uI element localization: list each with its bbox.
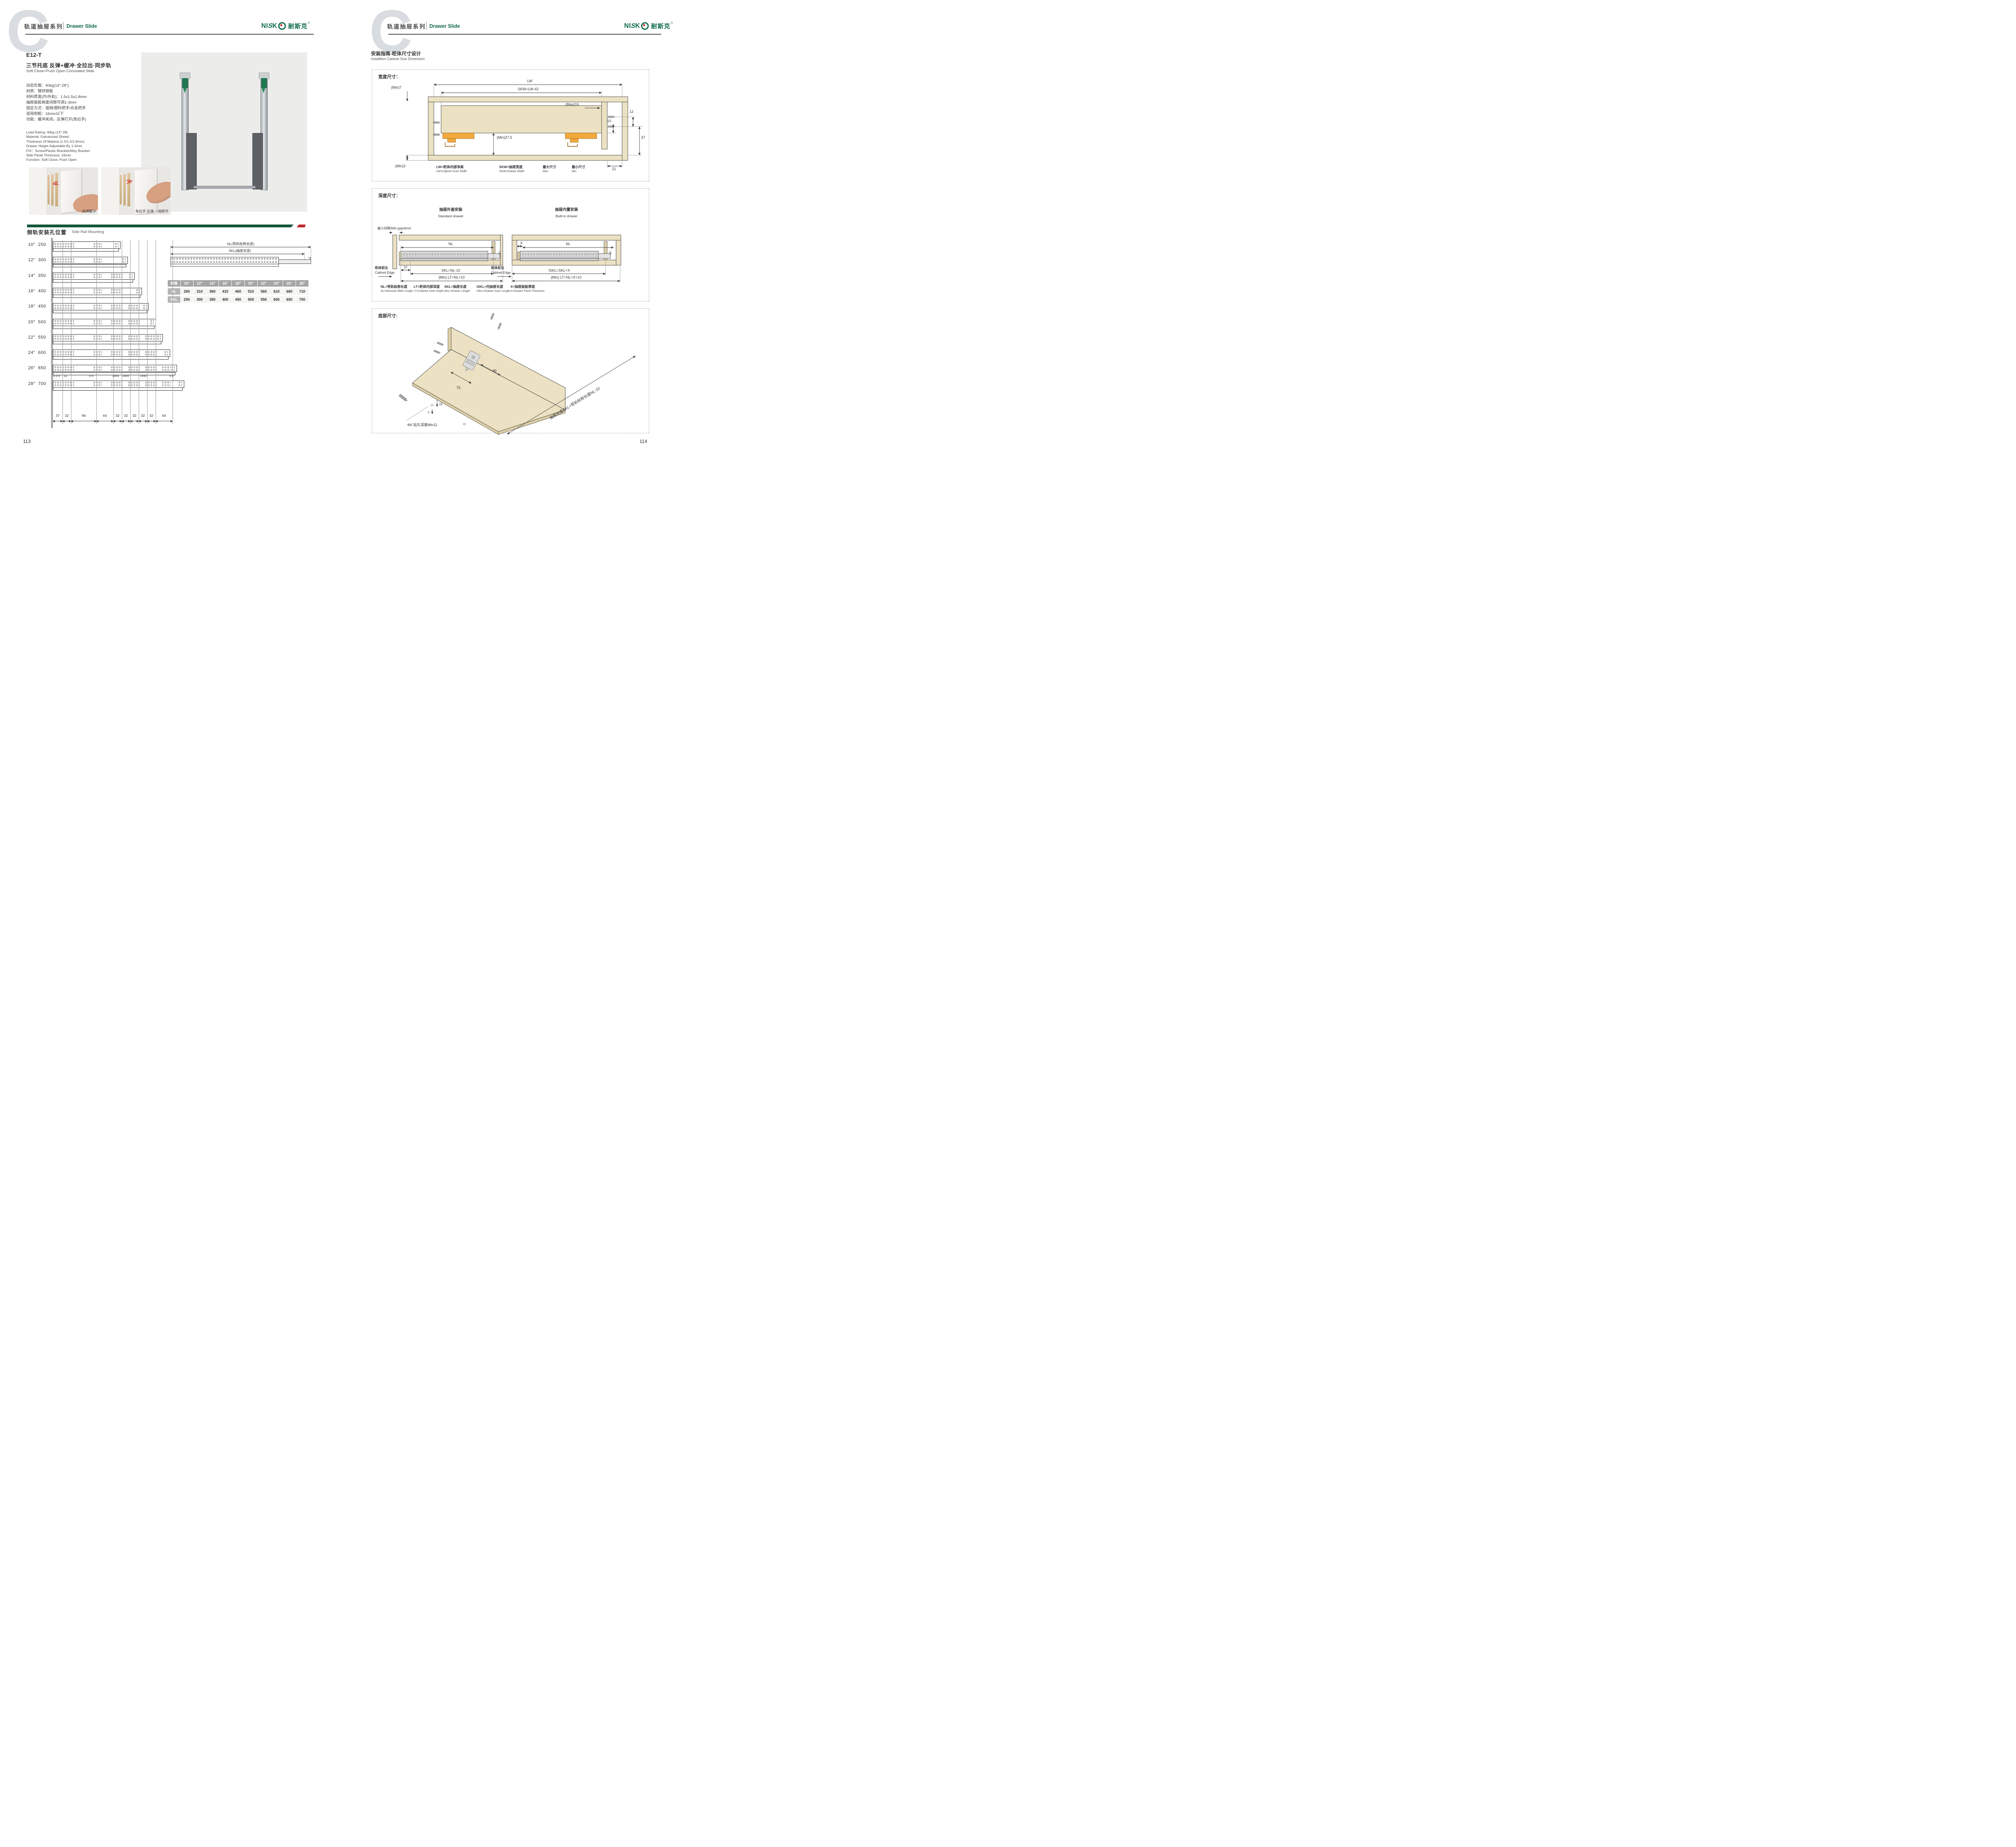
hole-cluster [93,243,102,248]
edge-label-cn: 柜体前沿 [375,266,388,270]
nl-dim: NL [448,242,453,246]
bottom-dim-arrow [130,421,139,421]
hole-cluster [128,335,140,340]
guide-line [71,240,71,424]
bottom-dim-arrow [156,421,173,421]
iskl-dim: ISKL=SKL+X [548,268,570,272]
legend-cn: SKW=抽屉宽度 [499,164,524,169]
hole-cluster [93,320,102,325]
legend-item: SKW=抽屉宽度SKW=Drawer Width [499,164,524,173]
hole-cluster [150,320,154,325]
series-title-cn: 轨道抽屉系列 [387,23,426,31]
legend-cn: ISKL=内抽屉长度 [477,284,510,289]
legend-item: SKL=抽屉长度SKL=Drawer Length [444,284,470,293]
rail-channel [53,310,147,313]
rail-channel [53,279,133,283]
bottom-dim-label: 32 [122,414,130,418]
screw-icon [437,342,444,346]
guide-line [139,240,139,424]
hole-cluster [110,304,123,310]
bottom-dim-label: 96 [71,414,96,418]
hole-cluster [93,366,102,371]
screw-icon [608,126,615,128]
hole-cluster [157,335,161,340]
d12-dim: 12 [629,110,633,114]
bottom-dim-label: 32 [130,414,139,418]
rail-channel [53,264,126,267]
hole-cluster [128,304,140,310]
legend-en: LT=Cabinet Inner Depth [414,290,444,293]
hole-cluster [128,320,140,325]
legend-en: Min [572,170,585,173]
d7-dim: 7 [427,411,429,415]
logo-o-icon [641,22,649,30]
bottom-dim-arrow [122,421,130,421]
slide-hardware-left [443,133,474,146]
drill-label: Φ6 钻孔深度Min11 [407,422,437,427]
legend-cn: 最大尺寸 [543,164,556,169]
legend-cn: LT=柜体内部深度 [414,284,444,289]
drill-screw-icon [399,394,408,402]
hole-cluster [143,304,147,310]
screw-icon [490,313,494,320]
hole-cluster [128,366,140,371]
nl-dim: NL [566,242,571,246]
bottom-dim-arrow [53,421,62,421]
legend-item: 最小尺寸Min [572,164,585,173]
hole-cluster [110,273,123,279]
legend-cn: 最小尺寸 [572,164,585,169]
legend-cn: LW=柜体内部净高 [436,164,467,169]
hole-cluster [128,381,140,387]
hole-pitch-dim: 1499 [140,374,147,378]
hole-cluster [93,335,102,340]
hole-pitch-dim: 9 9 [169,374,173,378]
guide-line [173,240,173,424]
hole-cluster [93,258,102,263]
hole-cluster [145,351,157,356]
legend-en: ISKL=Drawer Inner Length [477,290,510,293]
hole-cluster [145,381,157,387]
bottom-dimension-diagram: 底部尺寸: 75 85 11 7 [372,308,649,433]
min-gap-label: 最小间隙(Min gap)4mm [377,226,411,230]
hole-cluster [136,289,140,294]
d10-dim: 10 [607,119,611,123]
guide-line [147,240,148,424]
hole-cluster [164,351,168,356]
bottom-dim-arrow [139,421,147,421]
x-dim: X [520,241,523,245]
width-box-title: 宽度尺寸： [378,74,400,79]
header-divider [426,22,427,30]
hole-cluster [110,335,123,340]
screw-icon [497,323,502,330]
hole-cluster [110,351,123,356]
slide-hardware-right [565,133,597,146]
d37-dim: 37 [641,135,645,139]
install-section-title-cn: 安装指南-柜体尺寸设计 [371,50,421,57]
rail-channel [53,387,183,391]
bottom-dim-label: 32 [113,414,122,418]
hole-cluster [145,335,157,340]
min7-dim: (Min)7 [391,85,402,89]
skl-dim: SKL=NL-10 [442,268,460,272]
hole-cluster [128,351,140,356]
legend-en: Max [543,170,556,173]
legend-cn: SKL=抽屉长度 [444,284,470,289]
hole-cluster [122,258,126,263]
bottom-dim-label: 32 [139,414,147,418]
rail-channel [53,341,161,344]
edge-label-en: Cabinet Edge [375,271,395,275]
guide-line [96,240,97,424]
bottom-dim-arrow [71,421,96,421]
header-rule [388,34,661,35]
rail-channel [53,356,169,360]
series-title-en: Drawer Slide [429,23,460,29]
lt-dim: (Min) LT=NL+X+10 [551,275,581,279]
bottom-dim-label: 64 [96,414,113,418]
legend-item: ISKL=内抽屉长度ISKL=Drawer Inner Length [477,284,510,293]
legend-en: LW=Cabinet Inner Width [436,170,467,173]
hole-cluster [178,381,182,387]
bottom-dim-arrow [147,421,156,421]
max16-dim: (Max)16 [565,102,579,106]
hole-cluster [93,273,102,279]
page-right: C 轨道抽屉系列 Drawer Slide NISK耐斯克® 安装指南-柜体尺寸… [0,0,676,462]
legend-cn: NL=导轨标称长度 [381,284,413,289]
d21-dim: 21 [612,167,616,171]
bottom-dim-label: 32 [62,414,71,418]
hole-pitch-dim: 9 9 [89,374,93,378]
guide-line [62,240,63,424]
guide-line [156,240,156,424]
screw-icon [434,350,441,354]
bottom-dim-label: 32 [147,414,156,418]
legend-item: 最大尺寸Max [543,164,556,173]
lt-dim: (Min) LT=NL+10 [439,275,465,279]
bottom-box-title: 底部尺寸: [378,313,398,318]
hole-cluster [162,381,171,387]
hole-pitch-dim: 9 9 9 [53,374,60,378]
hole-cluster [93,381,102,387]
bottom-dim-label: 64 [156,414,173,418]
hole-cluster [93,351,102,356]
hole-cluster [93,304,102,310]
hole-pitch-dim: 32 [64,374,67,378]
bottom-dim-label: 37 [53,414,62,418]
legend-en: SKW=Drawer Width [499,170,524,173]
legend-item: LW=柜体内部净高LW=Cabinet Inner Width [436,164,467,173]
legend-item: NL=导轨标称长度NL=Nominal Slide Length [381,284,413,293]
guide-line [122,240,122,424]
hole-pitch-dim: 1499 [112,374,119,378]
hole-cluster [145,366,157,371]
bottom-dim-arrow [62,421,71,421]
hole-cluster [171,366,175,371]
bottom-dim-arrow [96,421,113,421]
hole-pitch-dim: 1499 [122,374,129,378]
hole-cluster [162,366,171,371]
legend-en: X=Drawer Panel Thickness [510,290,545,293]
page-number-right: 114 [639,439,647,444]
d85-dim: 85 [493,369,497,373]
hole-cluster [129,273,133,279]
legend-item: X=抽屉面板厚度X=Drawer Panel Thickness [510,284,545,293]
rail-channel [53,326,154,329]
brand-logo: NISK耐斯克® [624,22,673,30]
built-title-cn: 抽屉内置安装 [555,207,578,212]
depth-box-title: 深度尺寸： [378,193,400,198]
legend-en: SKL=Drawer Length [444,290,470,293]
guide-line [130,240,131,424]
hole-cluster [110,366,123,371]
hole-cluster [93,289,102,294]
edge-label-cn: 柜体前沿 [491,266,504,270]
guide-line [113,240,114,424]
skw-dim: SKW=LW-42 [518,87,538,91]
legend-en: NL=Nominal Slide Length [381,290,413,293]
hole-cluster [115,243,119,248]
d75-dim: 75 [456,386,460,390]
hole-cluster [110,289,123,294]
hole-cluster [110,381,123,387]
legend-cn: X=抽屉面板厚度 [510,284,545,289]
d37-dim: 37 [404,266,408,269]
legend-item: LT=柜体内部深度LT=Cabinet Inner Depth [414,284,444,293]
catalog-spread: C 轨道抽屉系列 Drawer Slide NISK耐斯克® E12-T 三节托… [0,0,676,462]
lw-dim: LW [527,79,533,83]
min275-dim: (Min)27.5 [497,135,512,139]
built-title-en: Built-in drawer [556,214,577,218]
hole-cluster [110,320,123,325]
bottom-dim-arrow [113,421,122,421]
min3-dim: (Min)3 [395,164,406,168]
screw-icon [608,116,615,118]
d11-dim: 11 [439,402,443,406]
std-title-en: Standard drawer [438,214,464,218]
install-section-title-en: Installtion Cabinet Size Dimension [371,57,425,61]
edge-label-en: Cabinet Edge [491,271,511,275]
std-title-cn: 抽屉外盖安装 [439,207,462,212]
